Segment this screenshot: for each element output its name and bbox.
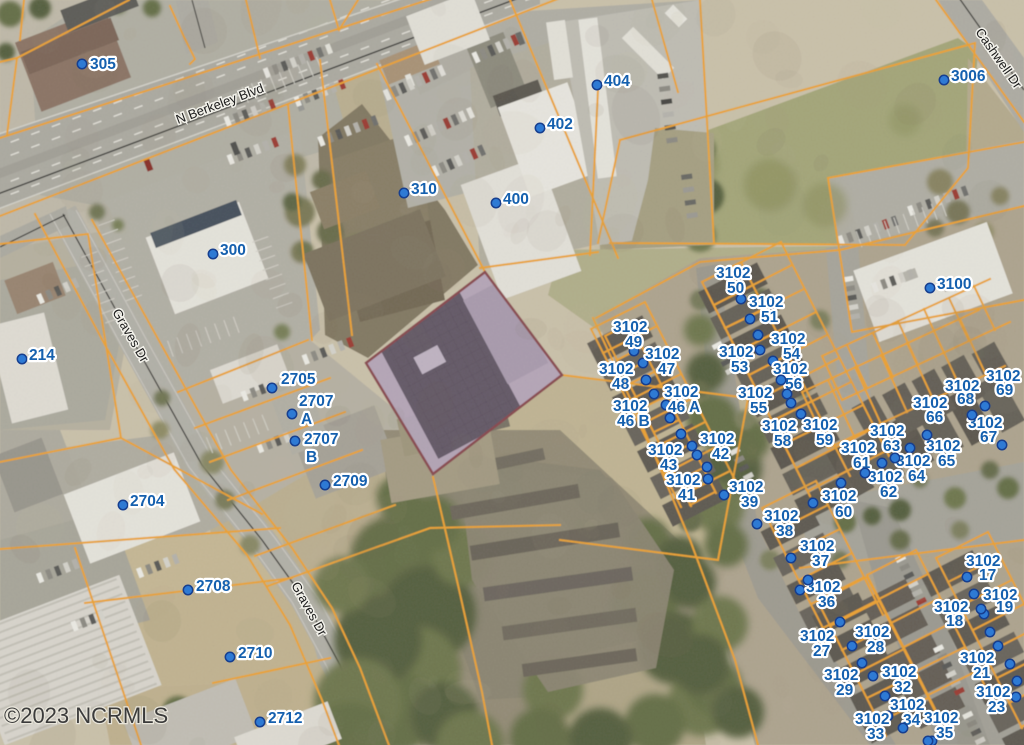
svg-text:21: 21 (973, 665, 991, 682)
svg-text:65: 65 (938, 453, 956, 470)
svg-text:400: 400 (503, 191, 529, 208)
svg-text:53: 53 (731, 359, 749, 376)
svg-text:3102: 3102 (822, 488, 856, 505)
svg-text:2710: 2710 (238, 645, 272, 662)
svg-text:50: 50 (727, 280, 744, 297)
svg-text:33: 33 (867, 726, 885, 743)
svg-text:300: 300 (220, 242, 246, 259)
svg-text:42: 42 (712, 446, 729, 463)
svg-text:2708: 2708 (196, 578, 231, 595)
svg-text:32: 32 (894, 679, 911, 696)
svg-text:B: B (306, 449, 317, 466)
svg-text:38: 38 (776, 523, 794, 540)
svg-text:35: 35 (936, 725, 954, 742)
svg-text:2709: 2709 (333, 473, 368, 490)
svg-text:19: 19 (996, 599, 1014, 616)
svg-text:29: 29 (836, 682, 854, 699)
svg-text:58: 58 (774, 433, 792, 450)
svg-text:2707: 2707 (299, 393, 333, 410)
svg-text:23: 23 (988, 699, 1006, 716)
svg-text:17: 17 (979, 567, 996, 584)
svg-text:27: 27 (813, 643, 830, 660)
svg-text:36: 36 (818, 594, 836, 611)
svg-text:402: 402 (547, 116, 573, 133)
svg-text:28: 28 (867, 639, 885, 656)
svg-text:A: A (301, 411, 312, 428)
svg-text:2705: 2705 (281, 371, 316, 388)
svg-text:©2023 NCRMLS: ©2023 NCRMLS (4, 703, 168, 728)
svg-text:51: 51 (761, 309, 779, 326)
svg-text:64: 64 (908, 468, 926, 485)
svg-text:55: 55 (750, 400, 768, 417)
svg-text:68: 68 (957, 391, 975, 408)
svg-text:18: 18 (946, 613, 964, 630)
svg-text:41: 41 (678, 487, 696, 504)
svg-text:404: 404 (604, 73, 630, 90)
svg-text:67: 67 (980, 429, 997, 446)
svg-text:46 B: 46 B (617, 413, 650, 430)
svg-text:66: 66 (926, 409, 944, 426)
svg-text:49: 49 (625, 334, 643, 351)
svg-text:3100: 3100 (937, 276, 971, 293)
svg-text:48: 48 (612, 376, 630, 393)
svg-text:47: 47 (658, 361, 675, 378)
svg-text:59: 59 (816, 432, 834, 449)
svg-text:310: 310 (411, 181, 437, 198)
svg-text:2704: 2704 (130, 493, 165, 510)
svg-text:62: 62 (880, 484, 897, 501)
svg-text:3006: 3006 (951, 68, 986, 85)
svg-text:214: 214 (29, 347, 55, 364)
svg-text:69: 69 (996, 382, 1014, 399)
svg-text:39: 39 (741, 494, 759, 511)
svg-text:305: 305 (90, 56, 116, 73)
svg-text:2712: 2712 (268, 710, 302, 727)
svg-text:37: 37 (812, 553, 829, 570)
svg-text:60: 60 (835, 504, 852, 521)
svg-text:2707: 2707 (304, 431, 338, 448)
